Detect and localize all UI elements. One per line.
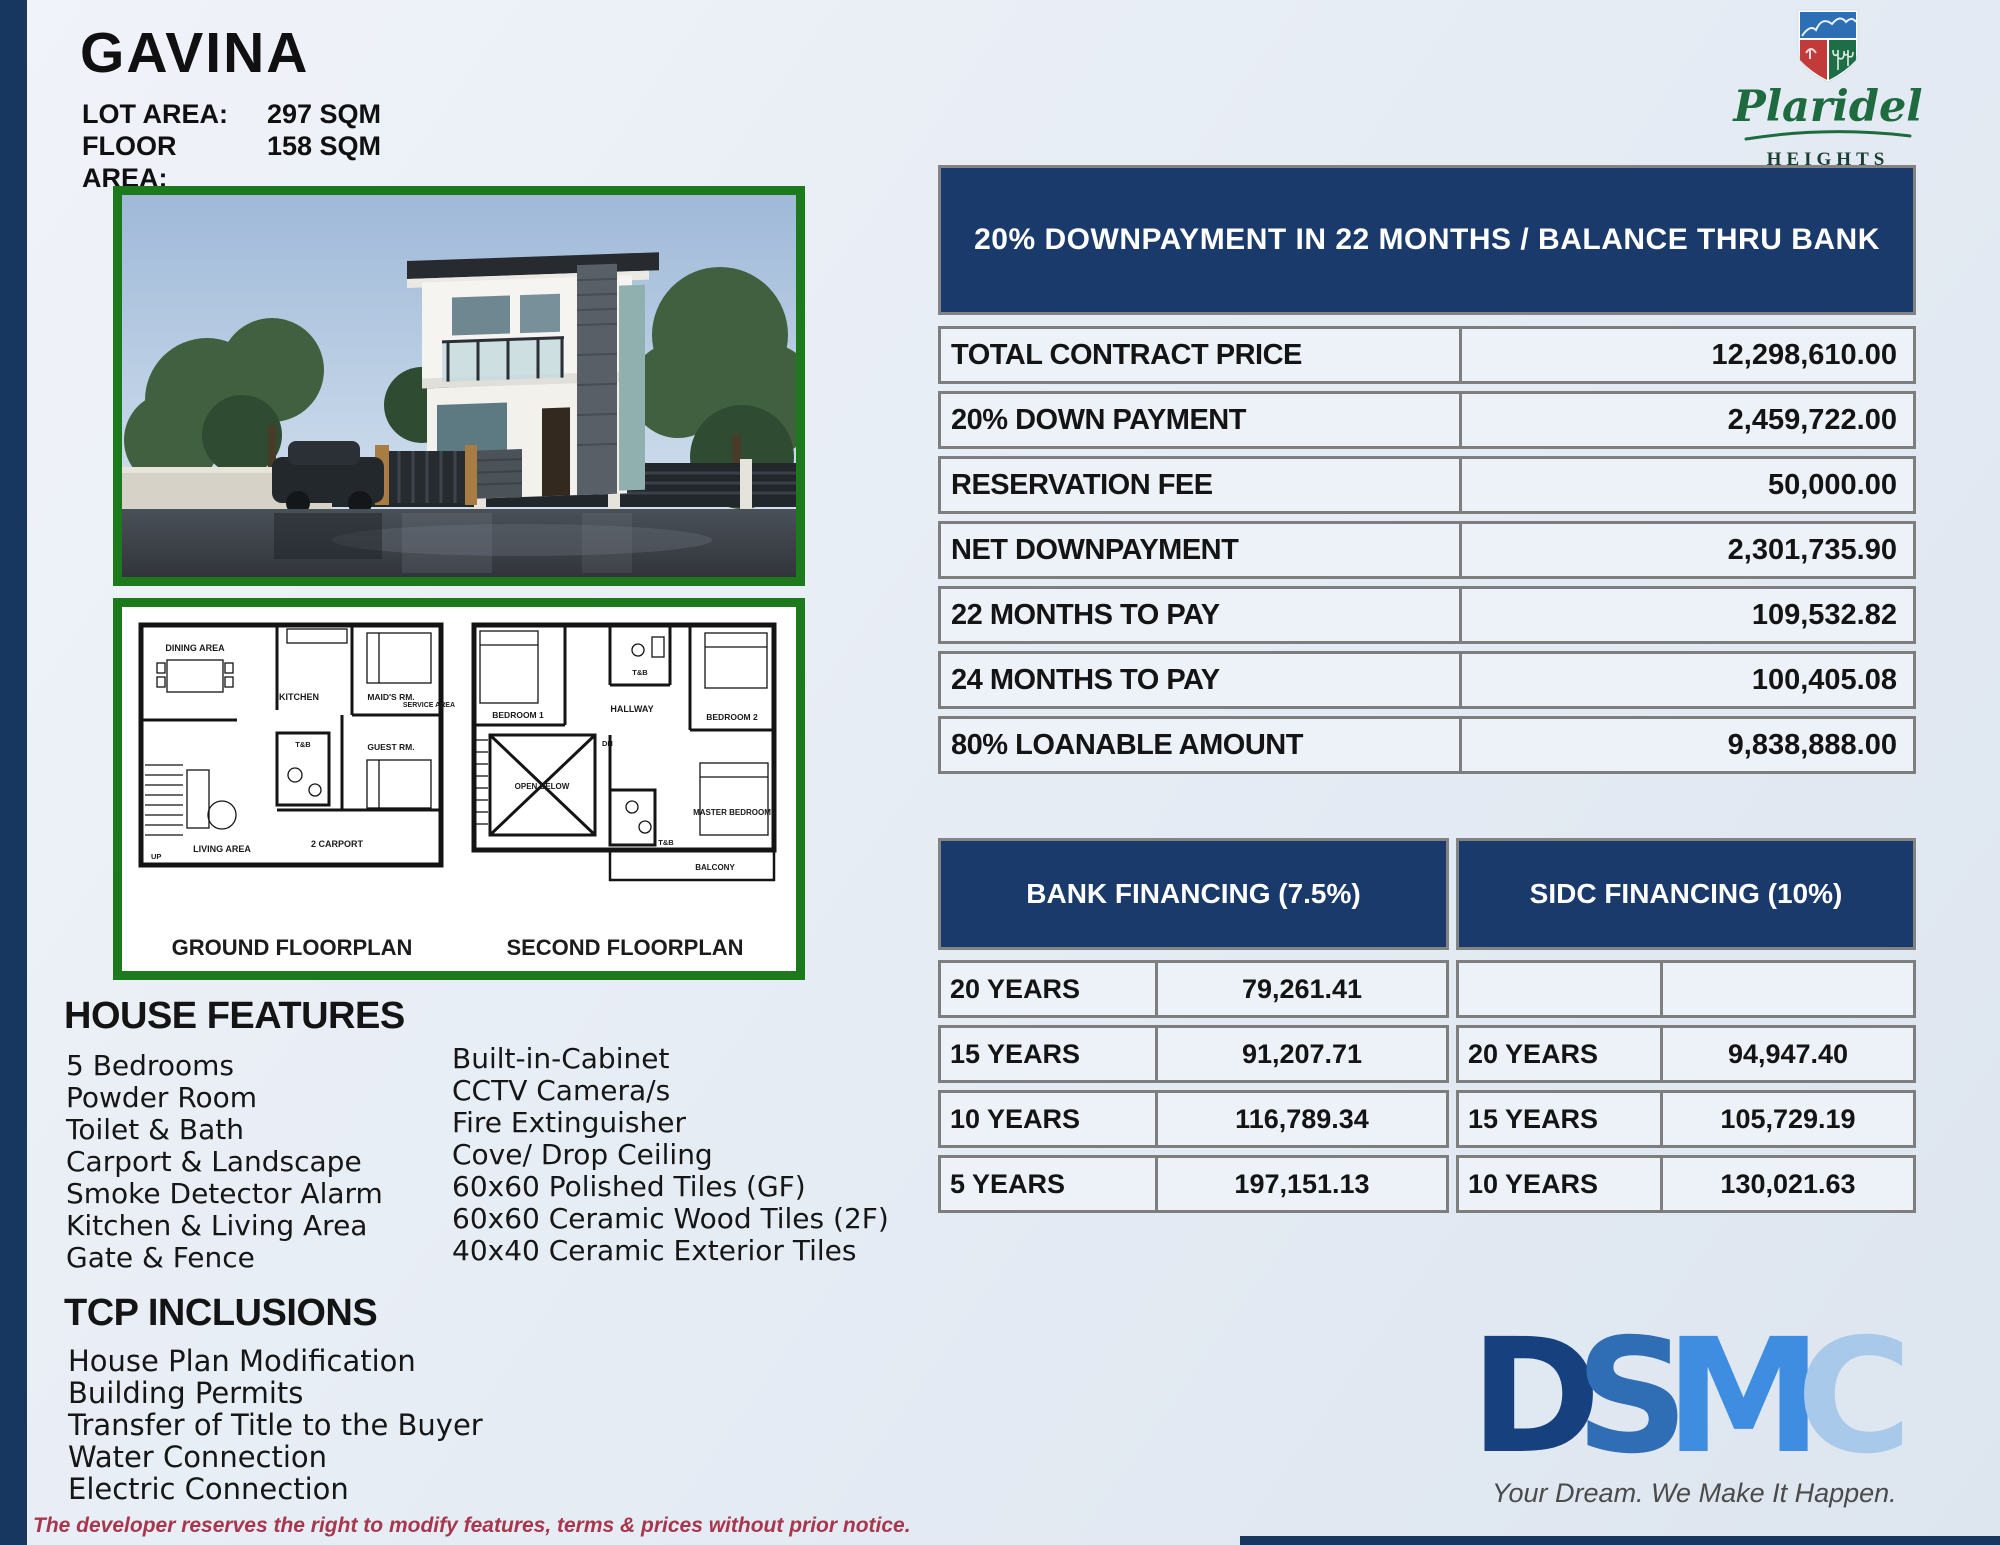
- amount-cell: 91,207.71: [1158, 1028, 1446, 1080]
- house-features-heading: HOUSE FEATURES: [64, 995, 405, 1038]
- fp-label-maids: MAID'S RM.: [367, 692, 414, 702]
- row-label: 22 MONTHS TO PAY: [941, 589, 1462, 641]
- row-label: 20% DOWN PAYMENT: [941, 394, 1462, 446]
- table-row: 24 MONTHS TO PAY 100,405.08: [938, 651, 1916, 709]
- list-item: 5 Bedrooms: [66, 1050, 383, 1082]
- row-value: 100,405.08: [1462, 654, 1913, 706]
- term-cell: 20 YEARS: [941, 963, 1158, 1015]
- dsmc-tagline: Your Dream. We Make It Happen.: [1492, 1478, 1897, 1509]
- house-render-illustration: [122, 195, 796, 577]
- area-specs: LOT AREA: 297 SQM FLOOR AREA: 158 SQM: [82, 98, 381, 194]
- term-cell: [1459, 963, 1663, 1015]
- amount-cell: 94,947.40: [1663, 1028, 1913, 1080]
- list-item: 40x40 Ceramic Exterior Tiles: [452, 1235, 889, 1267]
- floor-area-value: 158 SQM: [267, 130, 381, 194]
- fp-label-hallway: HALLWAY: [610, 704, 653, 714]
- row-label: RESERVATION FEE: [941, 459, 1462, 511]
- lot-area-row: LOT AREA: 297 SQM: [82, 98, 381, 130]
- list-item: Kitchen & Living Area: [66, 1210, 383, 1242]
- list-item: Fire Extinguisher: [452, 1107, 889, 1139]
- fp-label-master: MASTER BEDROOM: [693, 808, 771, 817]
- fp-label-guest: GUEST RM.: [367, 742, 414, 752]
- fp-label-dining: DINING AREA: [165, 643, 225, 653]
- floor-area-label: FLOOR AREA:: [82, 130, 267, 194]
- table-row: NET DOWNPAYMENT 2,301,735.90: [938, 521, 1916, 579]
- ground-floorplan-title: GROUND FLOORPLAN: [127, 935, 457, 961]
- amount-cell: 105,729.19: [1663, 1093, 1913, 1145]
- list-item: House Plan Modification: [68, 1345, 483, 1377]
- fp-label-balcony: BALCONY: [695, 863, 735, 872]
- row-value: 50,000.00: [1462, 459, 1913, 511]
- disclaimer-text: The developer reserves the right to modi…: [33, 1514, 911, 1538]
- term-cell: 15 YEARS: [941, 1028, 1158, 1080]
- fp-label-tb3: T&B: [658, 838, 674, 847]
- amount-cell: 116,789.34: [1158, 1093, 1446, 1145]
- fp-label-bedroom1: BEDROOM 1: [492, 710, 544, 720]
- price-table-header: 20% DOWNPAYMENT IN 22 MONTHS / BALANCE T…: [938, 165, 1916, 315]
- dsmc-letter-c: C: [1796, 1322, 1912, 1472]
- table-row: TOTAL CONTRACT PRICE 12,298,610.00: [938, 326, 1916, 384]
- bottom-accent-bar: [1240, 1536, 2000, 1545]
- flyer-page: GAVINA LOT AREA: 297 SQM FLOOR AREA: 158…: [0, 0, 2000, 1545]
- bank-financing-header: BANK FINANCING (7.5%): [938, 838, 1449, 950]
- row-value: 109,532.82: [1462, 589, 1913, 641]
- list-item: 60x60 Ceramic Wood Tiles (2F): [452, 1203, 889, 1235]
- fp-label-bedroom2: BEDROOM 2: [706, 712, 758, 722]
- list-item: Toilet & Bath: [66, 1114, 383, 1146]
- row-value: 2,301,735.90: [1462, 524, 1913, 576]
- table-row: 20% DOWN PAYMENT 2,459,722.00: [938, 391, 1916, 449]
- house-features-col1: 5 Bedrooms Powder Room Toilet & Bath Car…: [66, 1050, 383, 1274]
- house-photo: [113, 186, 805, 586]
- list-item: Electric Connection: [68, 1473, 483, 1505]
- amount-cell: 130,021.63: [1663, 1158, 1913, 1210]
- table-row: 80% LOANABLE AMOUNT 9,838,888.00: [938, 716, 1916, 774]
- fp-label-openbelow: OPEN BELOW: [515, 782, 570, 791]
- second-floorplan-title: SECOND FLOORPLAN: [460, 935, 790, 961]
- table-row: 5 YEARS 197,151.13: [938, 1155, 1449, 1213]
- ground-floorplan-drawing: DINING AREA KITCHEN MAID'S RM. SERVICE A…: [127, 615, 457, 915]
- fp-label-service: SERVICE AREA: [403, 702, 455, 709]
- amount-cell: 197,151.13: [1158, 1158, 1446, 1210]
- fp-label-tb2: T&B: [632, 668, 648, 677]
- list-item: Building Permits: [68, 1377, 483, 1409]
- table-row: 20 YEARS 79,261.41: [938, 960, 1449, 1018]
- brand-script-name: Plaridel: [1733, 85, 1923, 129]
- table-row: 15 YEARS 105,729.19: [1456, 1090, 1916, 1148]
- shield-icon: [1796, 8, 1860, 84]
- list-item: Carport & Landscape: [66, 1146, 383, 1178]
- fp-label-carport: 2 CARPORT: [311, 839, 364, 849]
- page-title: GAVINA: [80, 20, 309, 86]
- left-accent-bar: [0, 0, 27, 1545]
- fp-label-kitchen: KITCHEN: [279, 692, 319, 702]
- row-value: 9,838,888.00: [1462, 719, 1913, 771]
- list-item: Powder Room: [66, 1082, 383, 1114]
- list-item: Water Connection: [68, 1441, 483, 1473]
- list-item: Cove/ Drop Ceiling: [452, 1139, 889, 1171]
- term-cell: 20 YEARS: [1459, 1028, 1663, 1080]
- price-table: TOTAL CONTRACT PRICE 12,298,610.00 20% D…: [938, 326, 1916, 781]
- term-cell: 10 YEARS: [941, 1093, 1158, 1145]
- row-value: 2,459,722.00: [1462, 394, 1913, 446]
- list-item: Gate & Fence: [66, 1242, 383, 1274]
- term-cell: 15 YEARS: [1459, 1093, 1663, 1145]
- floorplan-panel: DINING AREA KITCHEN MAID'S RM. SERVICE A…: [113, 598, 805, 980]
- lot-area-value: 297 SQM: [267, 98, 381, 130]
- fp-label-up: UP: [151, 852, 161, 861]
- lot-area-label: LOT AREA:: [82, 98, 267, 130]
- list-item: Built-in-Cabinet: [452, 1043, 889, 1075]
- house-features-col2: Built-in-Cabinet CCTV Camera/s Fire Exti…: [452, 1043, 889, 1267]
- table-row: 22 MONTHS TO PAY 109,532.82: [938, 586, 1916, 644]
- amount-cell: 79,261.41: [1158, 963, 1446, 1015]
- dsmc-logo: D S M C: [1470, 1322, 1912, 1472]
- row-label: 24 MONTHS TO PAY: [941, 654, 1462, 706]
- plaridel-heights-logo: Plaridel HEIGHTS PLARIDEL, BULACAN: [1733, 8, 1923, 180]
- table-row: [1456, 960, 1916, 1018]
- table-row: RESERVATION FEE 50,000.00: [938, 456, 1916, 514]
- row-label: TOTAL CONTRACT PRICE: [941, 329, 1462, 381]
- list-item: CCTV Camera/s: [452, 1075, 889, 1107]
- list-item: 60x60 Polished Tiles (GF): [452, 1171, 889, 1203]
- sidc-financing-header: SIDC FINANCING (10%): [1456, 838, 1916, 950]
- sidc-financing-table: SIDC FINANCING (10%) 20 YEARS 94,947.40 …: [1456, 838, 1916, 1220]
- table-row: 20 YEARS 94,947.40: [1456, 1025, 1916, 1083]
- list-item: Transfer of Title to the Buyer: [68, 1409, 483, 1441]
- row-value: 12,298,610.00: [1462, 329, 1913, 381]
- fp-label-tb1: T&B: [295, 740, 311, 749]
- row-label: NET DOWNPAYMENT: [941, 524, 1462, 576]
- row-label: 80% LOANABLE AMOUNT: [941, 719, 1462, 771]
- term-cell: 5 YEARS: [941, 1158, 1158, 1210]
- second-floorplan-drawing: BEDROOM 1 HALLWAY T&B BEDROOM 2 DN OPEN …: [460, 615, 790, 915]
- bank-financing-table: BANK FINANCING (7.5%) 20 YEARS 79,261.41…: [938, 838, 1449, 1220]
- brand-underline-swoosh: [1742, 130, 1914, 142]
- list-item: Smoke Detector Alarm: [66, 1178, 383, 1210]
- tcp-inclusions-heading: TCP INCLUSIONS: [64, 1292, 377, 1335]
- table-row: 10 YEARS 116,789.34: [938, 1090, 1449, 1148]
- floor-area-row: FLOOR AREA: 158 SQM: [82, 130, 381, 194]
- table-row: 15 YEARS 91,207.71: [938, 1025, 1449, 1083]
- fp-label-living: LIVING AREA: [193, 844, 251, 854]
- amount-cell: [1663, 963, 1913, 1015]
- tcp-inclusions-list: House Plan Modification Building Permits…: [68, 1345, 483, 1505]
- fp-label-dn: DN: [602, 739, 613, 748]
- table-row: 10 YEARS 130,021.63: [1456, 1155, 1916, 1213]
- term-cell: 10 YEARS: [1459, 1158, 1663, 1210]
